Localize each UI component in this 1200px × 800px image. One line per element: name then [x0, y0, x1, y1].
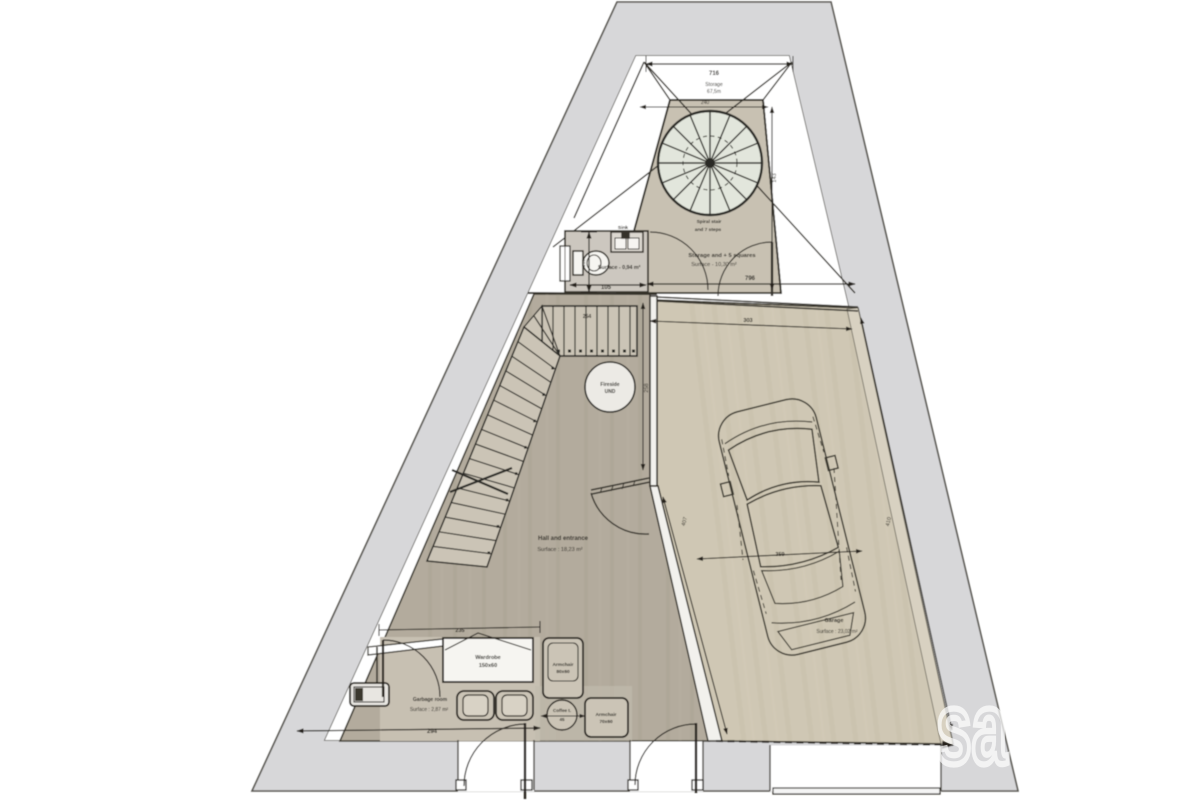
svg-text:Storage and + 5 squares: Storage and + 5 squares	[688, 253, 755, 259]
svg-text:UND: UND	[605, 389, 616, 395]
svg-text:Surface : 2,87 m²: Surface : 2,87 m²	[410, 707, 449, 713]
svg-text:and 7 steps: and 7 steps	[695, 227, 722, 233]
svg-text:Garage: Garage	[825, 618, 844, 624]
svg-text:150x60: 150x60	[479, 663, 497, 669]
svg-text:Surface - 0,94 m²: Surface - 0,94 m²	[598, 265, 641, 271]
svg-text:Armchair: Armchair	[595, 712, 616, 718]
svg-text:143: 143	[772, 173, 778, 182]
svg-text:210: 210	[581, 259, 586, 267]
svg-text:Fireside: Fireside	[600, 382, 619, 388]
svg-text:Hall and entrance: Hall and entrance	[538, 536, 589, 542]
svg-text:sa: sa	[936, 673, 1008, 787]
svg-text:Spiral stair: Spiral stair	[697, 219, 722, 225]
svg-text:67,5m: 67,5m	[707, 89, 721, 95]
svg-text:Surface : 18,23 m²: Surface : 18,23 m²	[537, 547, 582, 553]
svg-text:796: 796	[745, 276, 756, 282]
svg-text:Storage: Storage	[705, 82, 723, 88]
svg-text:105: 105	[601, 285, 612, 291]
svg-text:Coffee t.: Coffee t.	[553, 708, 571, 713]
svg-text:Surface : 23,02 m²: Surface : 23,02 m²	[816, 629, 857, 635]
svg-text:359: 359	[775, 552, 784, 558]
svg-text:716: 716	[709, 71, 720, 77]
svg-text:Surface - 10,30 m²: Surface - 10,30 m²	[691, 262, 737, 268]
svg-text:Sink: Sink	[618, 225, 628, 231]
svg-text:254: 254	[583, 314, 592, 320]
svg-text:80x60: 80x60	[556, 669, 570, 675]
svg-text:Wardrobe: Wardrobe	[475, 655, 500, 661]
svg-text:240: 240	[701, 100, 710, 106]
svg-text:Garbage room: Garbage room	[413, 697, 448, 703]
svg-text:235: 235	[455, 628, 464, 634]
svg-text:45: 45	[559, 717, 565, 722]
svg-text:258: 258	[644, 383, 650, 392]
svg-text:303: 303	[743, 318, 752, 324]
svg-text:70x60: 70x60	[599, 719, 613, 725]
svg-text:Armchair: Armchair	[552, 662, 573, 668]
svg-text:294: 294	[427, 729, 438, 735]
